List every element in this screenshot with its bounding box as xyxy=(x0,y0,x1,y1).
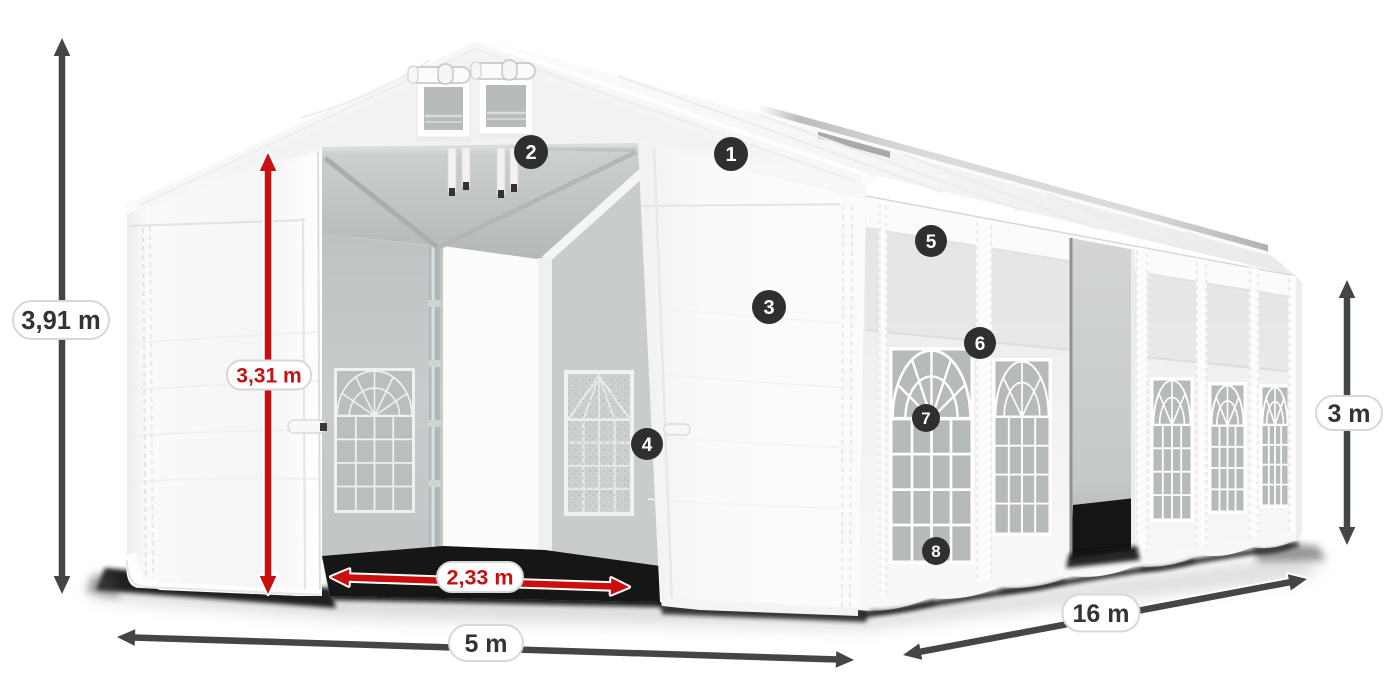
svg-text:3,31 m: 3,31 m xyxy=(236,365,301,388)
svg-text:5 m: 5 m xyxy=(464,630,507,658)
svg-text:5: 5 xyxy=(926,232,937,253)
svg-text:2: 2 xyxy=(525,142,536,164)
svg-text:2,33 m: 2,33 m xyxy=(447,566,514,590)
svg-text:16 m: 16 m xyxy=(1073,600,1130,628)
svg-text:3 m: 3 m xyxy=(1327,400,1370,428)
svg-text:3,91 m: 3,91 m xyxy=(21,307,100,335)
svg-text:7: 7 xyxy=(921,409,930,428)
svg-text:1: 1 xyxy=(725,144,736,166)
svg-text:3: 3 xyxy=(763,297,774,319)
svg-text:8: 8 xyxy=(931,542,940,561)
svg-text:6: 6 xyxy=(975,334,986,355)
svg-text:4: 4 xyxy=(642,435,653,456)
